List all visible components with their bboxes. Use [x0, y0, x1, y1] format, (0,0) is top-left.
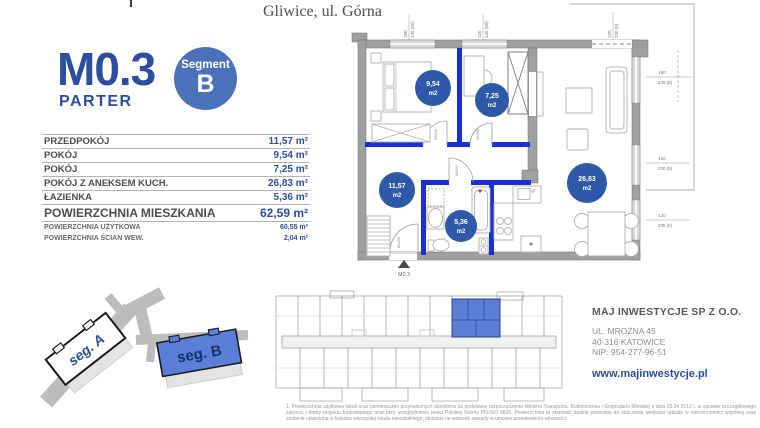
window-top-2: [462, 40, 507, 48]
door-dim: 80/200: [455, 165, 459, 176]
window-top-1: [390, 40, 435, 48]
dim-label: 120: [658, 156, 666, 161]
hall-wardrobe: [367, 216, 390, 256]
living-furniture: [566, 67, 639, 257]
room-circle-5-36: [445, 210, 477, 242]
room-area-unit: m2: [488, 103, 497, 109]
building-plan: [276, 291, 562, 401]
area-table: PRZEDPOKÓJ 11,57 m² POKÓJ 9,54 m² POKÓJ …: [42, 134, 310, 244]
row-value: 9,54 m²: [274, 150, 308, 161]
unit-level: PARTER: [59, 93, 133, 111]
row-value: 7,25 m²: [274, 164, 308, 175]
room-area-value: 11,57: [388, 183, 405, 190]
apartment-floor-plan: 9,54 m2 7,25 m2 11,57 m2 5,36 m2 26,83 m…: [352, 4, 694, 278]
balcony-door: [592, 40, 632, 48]
dim-label: 180: [658, 70, 666, 75]
room-area-unit: m2: [429, 91, 438, 97]
row-value: 62,59 m²: [260, 206, 308, 220]
company-website-link[interactable]: www.majinwestycje.pl: [592, 368, 708, 380]
room2-wardrobe: [508, 52, 528, 114]
row-value: 2,04 m²: [284, 235, 308, 242]
room-area-unit: m2: [583, 186, 592, 192]
room-area-unit: m2: [457, 229, 466, 235]
company-address: UL. MROŹNA 45 40-316 KATOWICE NIP: 954-2…: [592, 326, 757, 358]
dim-label: 145 (80): [484, 21, 489, 38]
row-label: POKÓJ: [44, 150, 77, 161]
kitchen-furniture: [494, 186, 541, 252]
company-nip: NIP: 954-277-96-51: [592, 347, 757, 358]
row-label: POKÓJ Z ANEKSEM KUCH.: [44, 178, 168, 189]
company-street: UL. MROŹNA 45: [592, 326, 757, 337]
dim-label: 230 (0): [658, 223, 673, 228]
footnote-text: 1. Powierzchnia użytkowa lokali oraz pom…: [286, 404, 756, 422]
room-area-value: 26,83: [578, 176, 596, 183]
flyer-page: 9,54 m2 7,25 m2 11,57 m2 5,36 m2 26,83 m…: [0, 0, 760, 428]
dim-label: 230 (0): [658, 80, 673, 85]
row-value: 26,83 m²: [268, 178, 308, 189]
room-area-value: 7,25: [485, 93, 499, 100]
table-row-sub: POWIERZCHNIA UŻYTKOWA 60,55 m²: [42, 222, 310, 233]
room-circle-7-25: [475, 83, 509, 117]
dim-label: 120: [658, 213, 666, 218]
bedroom-wardrobe: [372, 124, 430, 142]
dim-label: 120: [607, 30, 612, 38]
room-area-unit: m2: [393, 193, 402, 199]
table-row: PRZEDPOKÓJ 11,57 m²: [42, 134, 310, 148]
table-row-sub: POWIERZCHNIA ŚCIAN WEW. 2,04 m²: [42, 233, 310, 244]
room-area-value: 5,36: [454, 219, 468, 226]
row-label: POWIERZCHNIA MIESZKANIA: [44, 206, 216, 220]
location-title: Gliwice, ul. Górna: [0, 3, 645, 21]
room-circle-26-83: [567, 163, 607, 203]
row-label: POWIERZCHNIA ŚCIAN WEW.: [44, 235, 144, 242]
row-label: POKÓJ: [44, 164, 77, 175]
room-circle-9-54: [415, 70, 451, 106]
bath-tap-dot: [478, 189, 481, 192]
table-row: POKÓJ 7,25 m²: [42, 162, 310, 176]
highlighted-unit: [452, 299, 500, 337]
door-dim: 80/200: [434, 129, 438, 140]
company-name: MAJ INWESTYCJE SP Z O.O.: [592, 306, 757, 318]
dim-label: 120: [477, 30, 482, 38]
company-info: MAJ INWESTYCJE SP Z O.O. UL. MROŹNA 45 4…: [592, 306, 757, 382]
door-dim: 80/200: [397, 237, 401, 248]
dim-label: 230 (0): [614, 23, 619, 38]
table-row-total: POWIERZCHNIA MIESZKANIA 62,59 m²: [42, 204, 310, 222]
row-label: ŁAZIENKA: [44, 192, 92, 203]
segment-badge: Segment B: [174, 47, 237, 110]
row-label: PRZEDPOKÓJ: [44, 136, 109, 147]
table-row: POKÓJ 9,54 m²: [42, 148, 310, 162]
entrance-marker: M0.3: [398, 260, 410, 278]
row-value: 60,55 m²: [280, 224, 308, 231]
room-area-value: 9,54: [426, 81, 440, 88]
row-value: 5,36 m²: [274, 192, 308, 203]
window-right-2: [632, 145, 640, 185]
room-circle-11-57: [379, 172, 415, 208]
row-label: POWIERZCHNIA UŻYTKOWA: [44, 224, 141, 231]
outer-wall-left: [358, 40, 366, 260]
door-dim: 80/200: [476, 129, 480, 140]
entrance-label: M0.3: [398, 272, 410, 278]
dim-label: 230 (0): [658, 166, 673, 171]
dim-label: 180: [403, 30, 408, 38]
table-row: POKÓJ Z ANEKSEM KUCH. 26,83 m²: [42, 176, 310, 190]
unit-code: M0.3: [57, 42, 155, 96]
table-row: ŁAZIENKA 5,36 m²: [42, 190, 310, 204]
segment-badge-letter: B: [196, 72, 214, 97]
row-value: 11,57 m²: [269, 136, 308, 147]
window-right-1: [632, 57, 640, 103]
dim-label: 145 (80): [410, 21, 415, 38]
site-map: seg. A seg. B: [43, 293, 248, 402]
company-city: 40-316 KATOWICE: [592, 337, 757, 348]
